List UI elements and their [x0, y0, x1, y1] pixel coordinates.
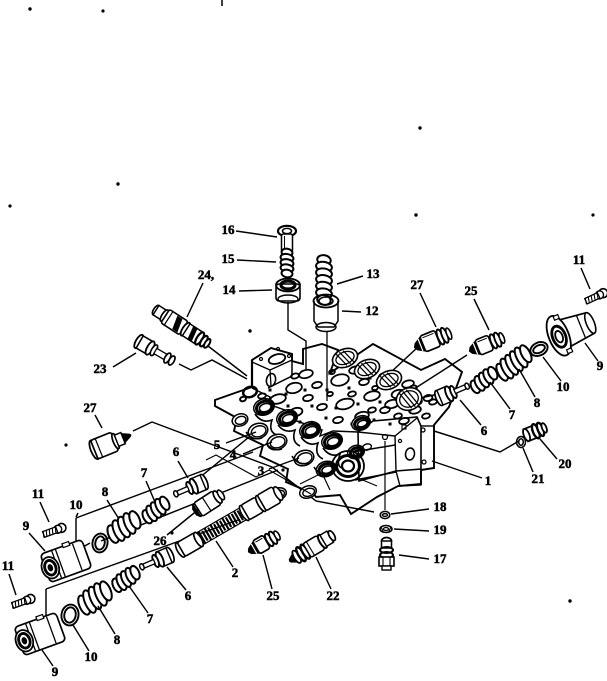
svg-text:2: 2: [232, 565, 239, 580]
svg-text:13: 13: [367, 266, 381, 281]
svg-text:20: 20: [559, 456, 572, 471]
svg-text:10: 10: [85, 649, 98, 664]
svg-text:27: 27: [411, 277, 425, 292]
svg-text:22: 22: [327, 588, 340, 603]
svg-text:7: 7: [141, 465, 148, 480]
svg-text:3: 3: [258, 463, 265, 478]
svg-text:8: 8: [534, 395, 541, 410]
svg-text:19: 19: [434, 522, 448, 537]
svg-text:9: 9: [52, 664, 59, 679]
svg-text:11: 11: [2, 558, 14, 573]
svg-text:8: 8: [114, 632, 121, 647]
svg-text:12: 12: [366, 303, 379, 318]
svg-text:4: 4: [230, 447, 237, 462]
svg-text:17: 17: [434, 551, 448, 566]
svg-text:25: 25: [465, 283, 479, 298]
svg-text:6: 6: [173, 444, 180, 459]
svg-text:24,: 24,: [198, 267, 214, 282]
svg-text:15: 15: [222, 251, 236, 266]
svg-text:10: 10: [557, 379, 570, 394]
svg-text:1: 1: [485, 473, 492, 488]
svg-text:18: 18: [434, 499, 448, 514]
svg-text:5: 5: [214, 437, 221, 452]
svg-text:26: 26: [154, 533, 168, 548]
svg-text:9: 9: [23, 518, 30, 533]
svg-text:7: 7: [147, 611, 154, 626]
svg-text:21: 21: [532, 471, 545, 486]
svg-text:6: 6: [185, 588, 192, 603]
svg-text:8: 8: [102, 484, 109, 499]
svg-text:11: 11: [32, 486, 44, 501]
svg-text:14: 14: [223, 282, 237, 297]
svg-text:10: 10: [70, 497, 83, 512]
svg-text:27: 27: [84, 400, 98, 415]
svg-text:7: 7: [509, 407, 516, 422]
svg-text:25: 25: [267, 588, 281, 603]
svg-text:6: 6: [481, 423, 488, 438]
svg-text:23: 23: [94, 361, 108, 376]
svg-text:11: 11: [573, 252, 585, 267]
svg-text:16: 16: [222, 222, 236, 237]
